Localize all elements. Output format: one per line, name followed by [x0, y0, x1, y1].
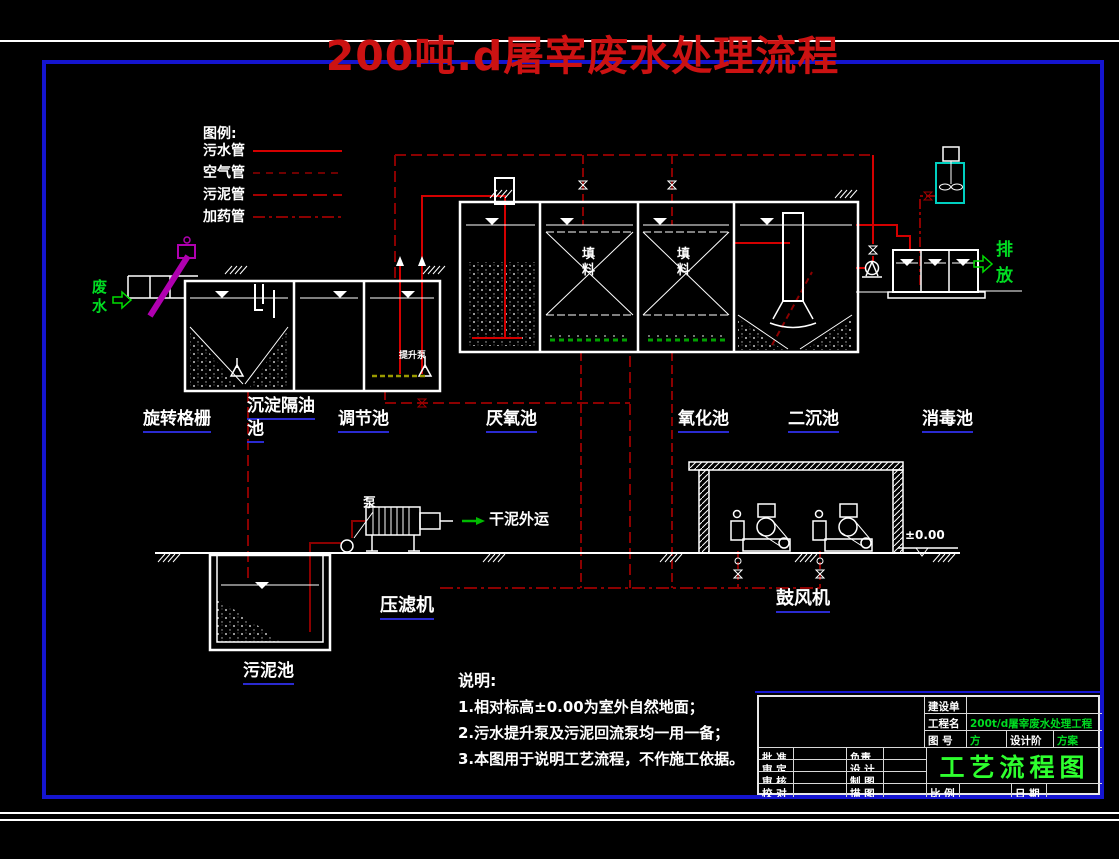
effluent-label: 排放 — [996, 237, 1015, 289]
label-sedimentation-1: 沉淀隔油 — [247, 397, 315, 420]
title-block-top-rule — [755, 691, 1100, 693]
dry-sludge-label: 干泥外运 — [489, 511, 549, 528]
sludge-air-dosing-pipes — [248, 155, 936, 632]
stage-label: 设计阶段 — [1007, 731, 1054, 748]
media-label-1: 填料 — [582, 247, 597, 279]
influent-label: 废水 — [92, 278, 109, 316]
legend-heading: 图例: — [203, 126, 237, 142]
label-oxidation-tank: 氧化池 — [678, 410, 729, 433]
proof-label: 校 对 — [759, 784, 794, 797]
dry-sludge-arrow-icon — [462, 517, 485, 525]
trace-label: 描 图 — [847, 784, 884, 797]
flow-arrowhead — [396, 256, 404, 266]
label-rotary-screen: 旋转格栅 — [143, 410, 211, 433]
drawing-no-value: 方案-01 — [967, 731, 1007, 748]
date-label: 日 期 — [1012, 784, 1047, 797]
label-sludge-pool: 污泥池 — [243, 662, 294, 685]
drawing-sheet: 200吨.d屠宰废水处理流程 图例: 污水管 空气管 污泥管 加药管 废水 排放… — [0, 0, 1119, 859]
design-label: 设 计 — [847, 760, 884, 772]
label-anaerobic-tank: 厌氧池 — [486, 410, 537, 433]
legend-line-samples — [253, 151, 342, 217]
title-block: 建设单位 工程名称 200t/d屠宰废水处理工程 图 号 方案-01 设计阶段 … — [757, 695, 1100, 795]
lift-pump-label: 提升泵 — [399, 351, 426, 361]
review-label: 审 核 — [759, 772, 794, 784]
drawing-title: 200吨.d屠宰废水处理流程 — [270, 33, 895, 80]
label-disinfection-tank: 消毒池 — [922, 410, 973, 433]
legend-item-sewage: 污水管 — [203, 143, 245, 159]
label-regulating-tank: 调节池 — [338, 410, 389, 433]
draft-label: 制 图 — [847, 772, 884, 784]
drawing-sheet-title: 工艺流程图 — [927, 748, 1102, 784]
verify-label: 审 定 — [759, 760, 794, 772]
notes-block: 说明: 1.相对标高±0.00为室外自然地面； 2.污水提升泵及污泥回流泵均一用… — [458, 668, 744, 772]
title-block-blank — [759, 697, 925, 748]
project-name-label: 工程名称 — [925, 714, 967, 731]
filter-press-device — [338, 507, 453, 553]
label-secondary-clarifier: 二沉池 — [788, 410, 839, 433]
note-item: 3.本图用于说明工艺流程，不作施工依据。 — [458, 746, 744, 772]
clarifier-pump — [862, 262, 882, 278]
effluent-arrow-icon — [974, 256, 992, 272]
blower-units — [731, 504, 872, 551]
note-item: 2.污水提升泵及污泥回流泵均一用一备； — [458, 720, 744, 746]
drawing-no-label: 图 号 — [925, 731, 967, 748]
sediment-hatch-left — [190, 330, 238, 387]
note-item: 1.相对标高±0.00为室外自然地面； — [458, 694, 744, 720]
flow-arrowhead — [418, 256, 426, 266]
anaerobic-sludge-hatch — [467, 262, 537, 346]
approve-label: 批 准 — [759, 748, 794, 760]
label-blower: 鼓风机 — [776, 589, 830, 613]
project-name-value: 200t/d屠宰废水处理工程 — [967, 714, 1102, 731]
media-label-2: 填料 — [677, 247, 692, 279]
valve-icon — [869, 246, 877, 254]
label-filter-press: 压滤机 — [380, 596, 434, 620]
notes-heading: 说明: — [458, 668, 744, 694]
legend-item-sludge: 污泥管 — [203, 187, 245, 203]
legend-item-dosing: 加药管 — [203, 209, 245, 225]
legend-item-air: 空气管 — [203, 165, 245, 181]
scale-label: 比 例 — [927, 784, 960, 797]
owner-label: 建设单位 — [925, 697, 967, 714]
label-sedimentation-2: 池 — [247, 420, 264, 443]
elevation-label: ±0.00 — [905, 529, 945, 543]
stage-value: 方案 — [1054, 731, 1102, 748]
charge-label: 负责人 — [847, 748, 884, 760]
dosing-tank — [936, 147, 964, 203]
pump-label: 泵 — [363, 497, 376, 512]
sludge-pool-hatch — [217, 598, 282, 642]
